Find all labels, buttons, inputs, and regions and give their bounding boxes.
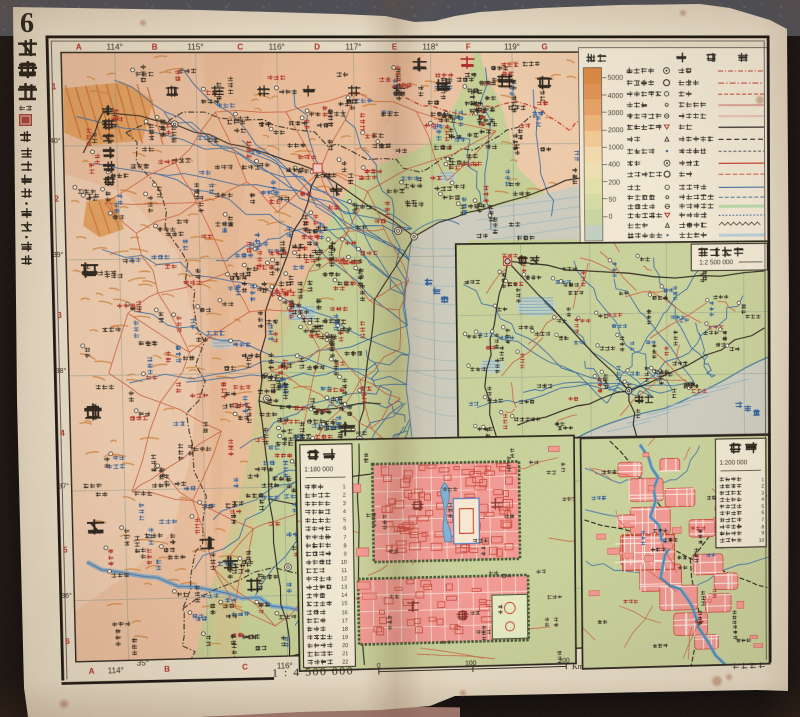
svg-text:6: 6	[20, 8, 34, 39]
svg-text:200: 200	[558, 657, 569, 665]
svg-text:0: 0	[377, 662, 381, 670]
svg-text:100: 100	[465, 659, 476, 667]
svg-text:Km.: Km.	[572, 662, 586, 671]
